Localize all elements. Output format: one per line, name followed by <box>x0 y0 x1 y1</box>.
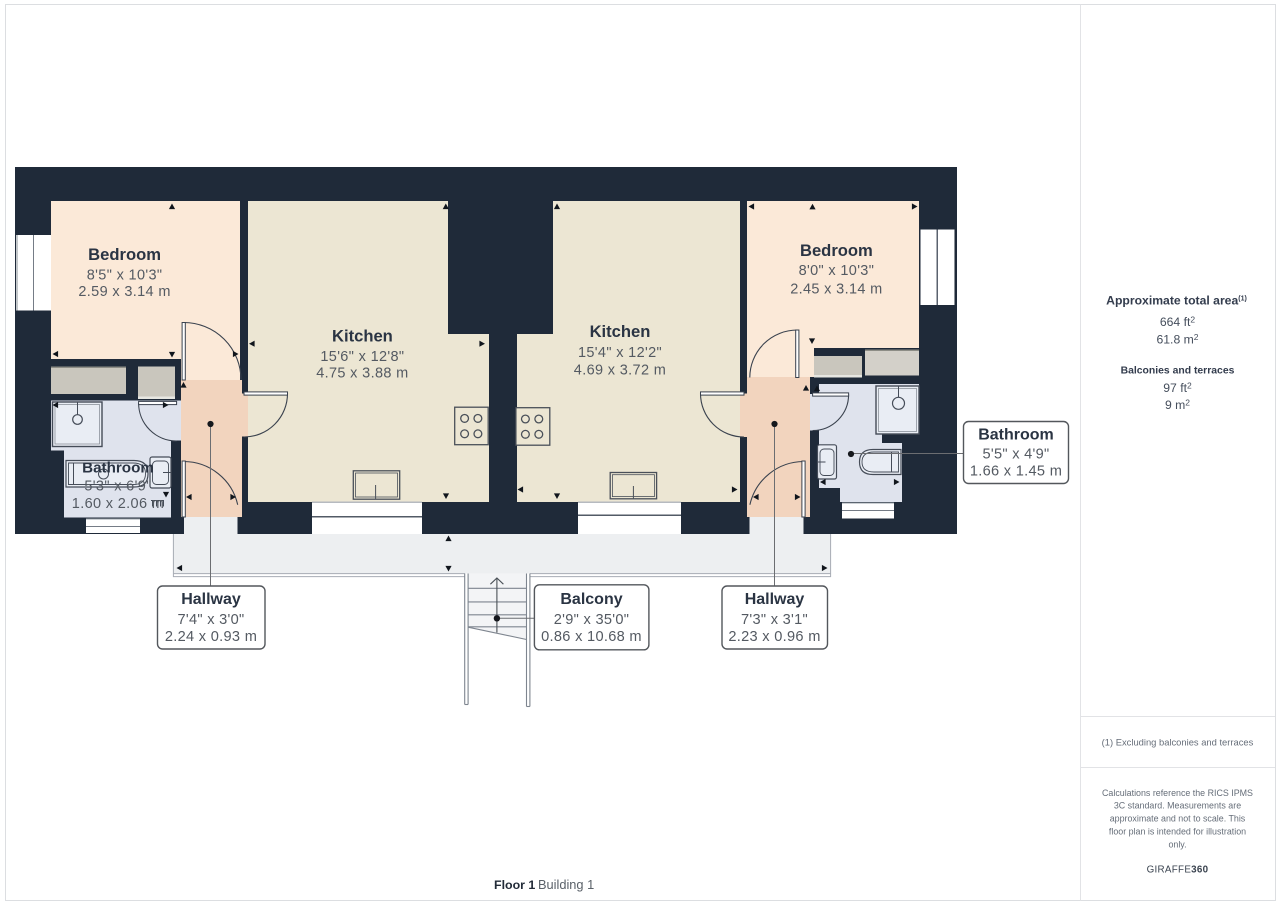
svg-text:Bedroom: Bedroom <box>88 245 161 264</box>
svg-text:0.86 x 10.68 m: 0.86 x 10.68 m <box>541 629 642 645</box>
svg-text:Calculations reference the RIC: Calculations reference the RICS IPMS <box>1102 788 1253 798</box>
svg-text:Approximate total area(1): Approximate total area(1) <box>1106 294 1247 308</box>
svg-text:4.75 x 3.88 m: 4.75 x 3.88 m <box>316 366 408 382</box>
svg-text:5'5" x 4'9": 5'5" x 4'9" <box>982 447 1049 463</box>
svg-text:9 m2: 9 m2 <box>1165 398 1190 413</box>
svg-text:Balcony: Balcony <box>560 591 622 608</box>
svg-text:5'3" x 6'9": 5'3" x 6'9" <box>84 478 151 494</box>
svg-text:2.24 x 0.93 m: 2.24 x 0.93 m <box>165 629 257 645</box>
svg-text:97 ft2: 97 ft2 <box>1163 381 1192 396</box>
svg-text:7'3" x 3'1": 7'3" x 3'1" <box>741 612 808 628</box>
svg-text:Bedroom: Bedroom <box>800 241 873 260</box>
svg-text:only.: only. <box>1168 839 1186 849</box>
svg-text:Kitchen: Kitchen <box>590 322 651 341</box>
svg-text:61.8 m2: 61.8 m2 <box>1157 332 1199 347</box>
svg-text:Building 1: Building 1 <box>538 877 594 892</box>
svg-text:3C standard. Measurements are: 3C standard. Measurements are <box>1114 801 1241 811</box>
svg-text:Hallway: Hallway <box>745 591 805 608</box>
svg-text:Bathroom: Bathroom <box>978 427 1054 444</box>
svg-text:8'0" x 10'3": 8'0" x 10'3" <box>799 263 875 279</box>
svg-text:2.45 x 3.14 m: 2.45 x 3.14 m <box>790 281 882 297</box>
svg-text:2.23 x 0.96 m: 2.23 x 0.96 m <box>728 629 820 645</box>
svg-text:(1) Excluding balconies and te: (1) Excluding balconies and terraces <box>1102 737 1254 748</box>
svg-text:8'5" x 10'3": 8'5" x 10'3" <box>87 267 163 283</box>
svg-text:approximate and not to scale.: approximate and not to scale. This <box>1110 814 1246 824</box>
svg-text:Bathroom: Bathroom <box>82 459 154 476</box>
svg-text:Hallway: Hallway <box>181 591 241 608</box>
svg-text:Kitchen: Kitchen <box>332 326 393 345</box>
svg-text:1.66 x 1.45 m: 1.66 x 1.45 m <box>970 464 1062 480</box>
svg-text:15'4" x 12'2": 15'4" x 12'2" <box>578 345 662 361</box>
svg-text:7'4" x 3'0": 7'4" x 3'0" <box>177 612 244 628</box>
svg-text:floor plan is intended for ill: floor plan is intended for illustration <box>1109 827 1246 837</box>
svg-text:1.60 x 2.06 m: 1.60 x 2.06 m <box>72 496 164 512</box>
svg-text:Balconies and terraces: Balconies and terraces <box>1121 366 1235 377</box>
svg-text:15'6" x 12'8": 15'6" x 12'8" <box>320 349 404 365</box>
svg-text:Floor 1: Floor 1 <box>494 878 535 892</box>
svg-text:2.59 x 3.14 m: 2.59 x 3.14 m <box>78 284 170 300</box>
svg-text:GIRAFFE360: GIRAFFE360 <box>1147 865 1209 876</box>
svg-text:2'9" x 35'0": 2'9" x 35'0" <box>554 612 630 628</box>
svg-text:4.69 x 3.72 m: 4.69 x 3.72 m <box>574 362 666 378</box>
svg-text:664 ft2: 664 ft2 <box>1160 314 1196 329</box>
